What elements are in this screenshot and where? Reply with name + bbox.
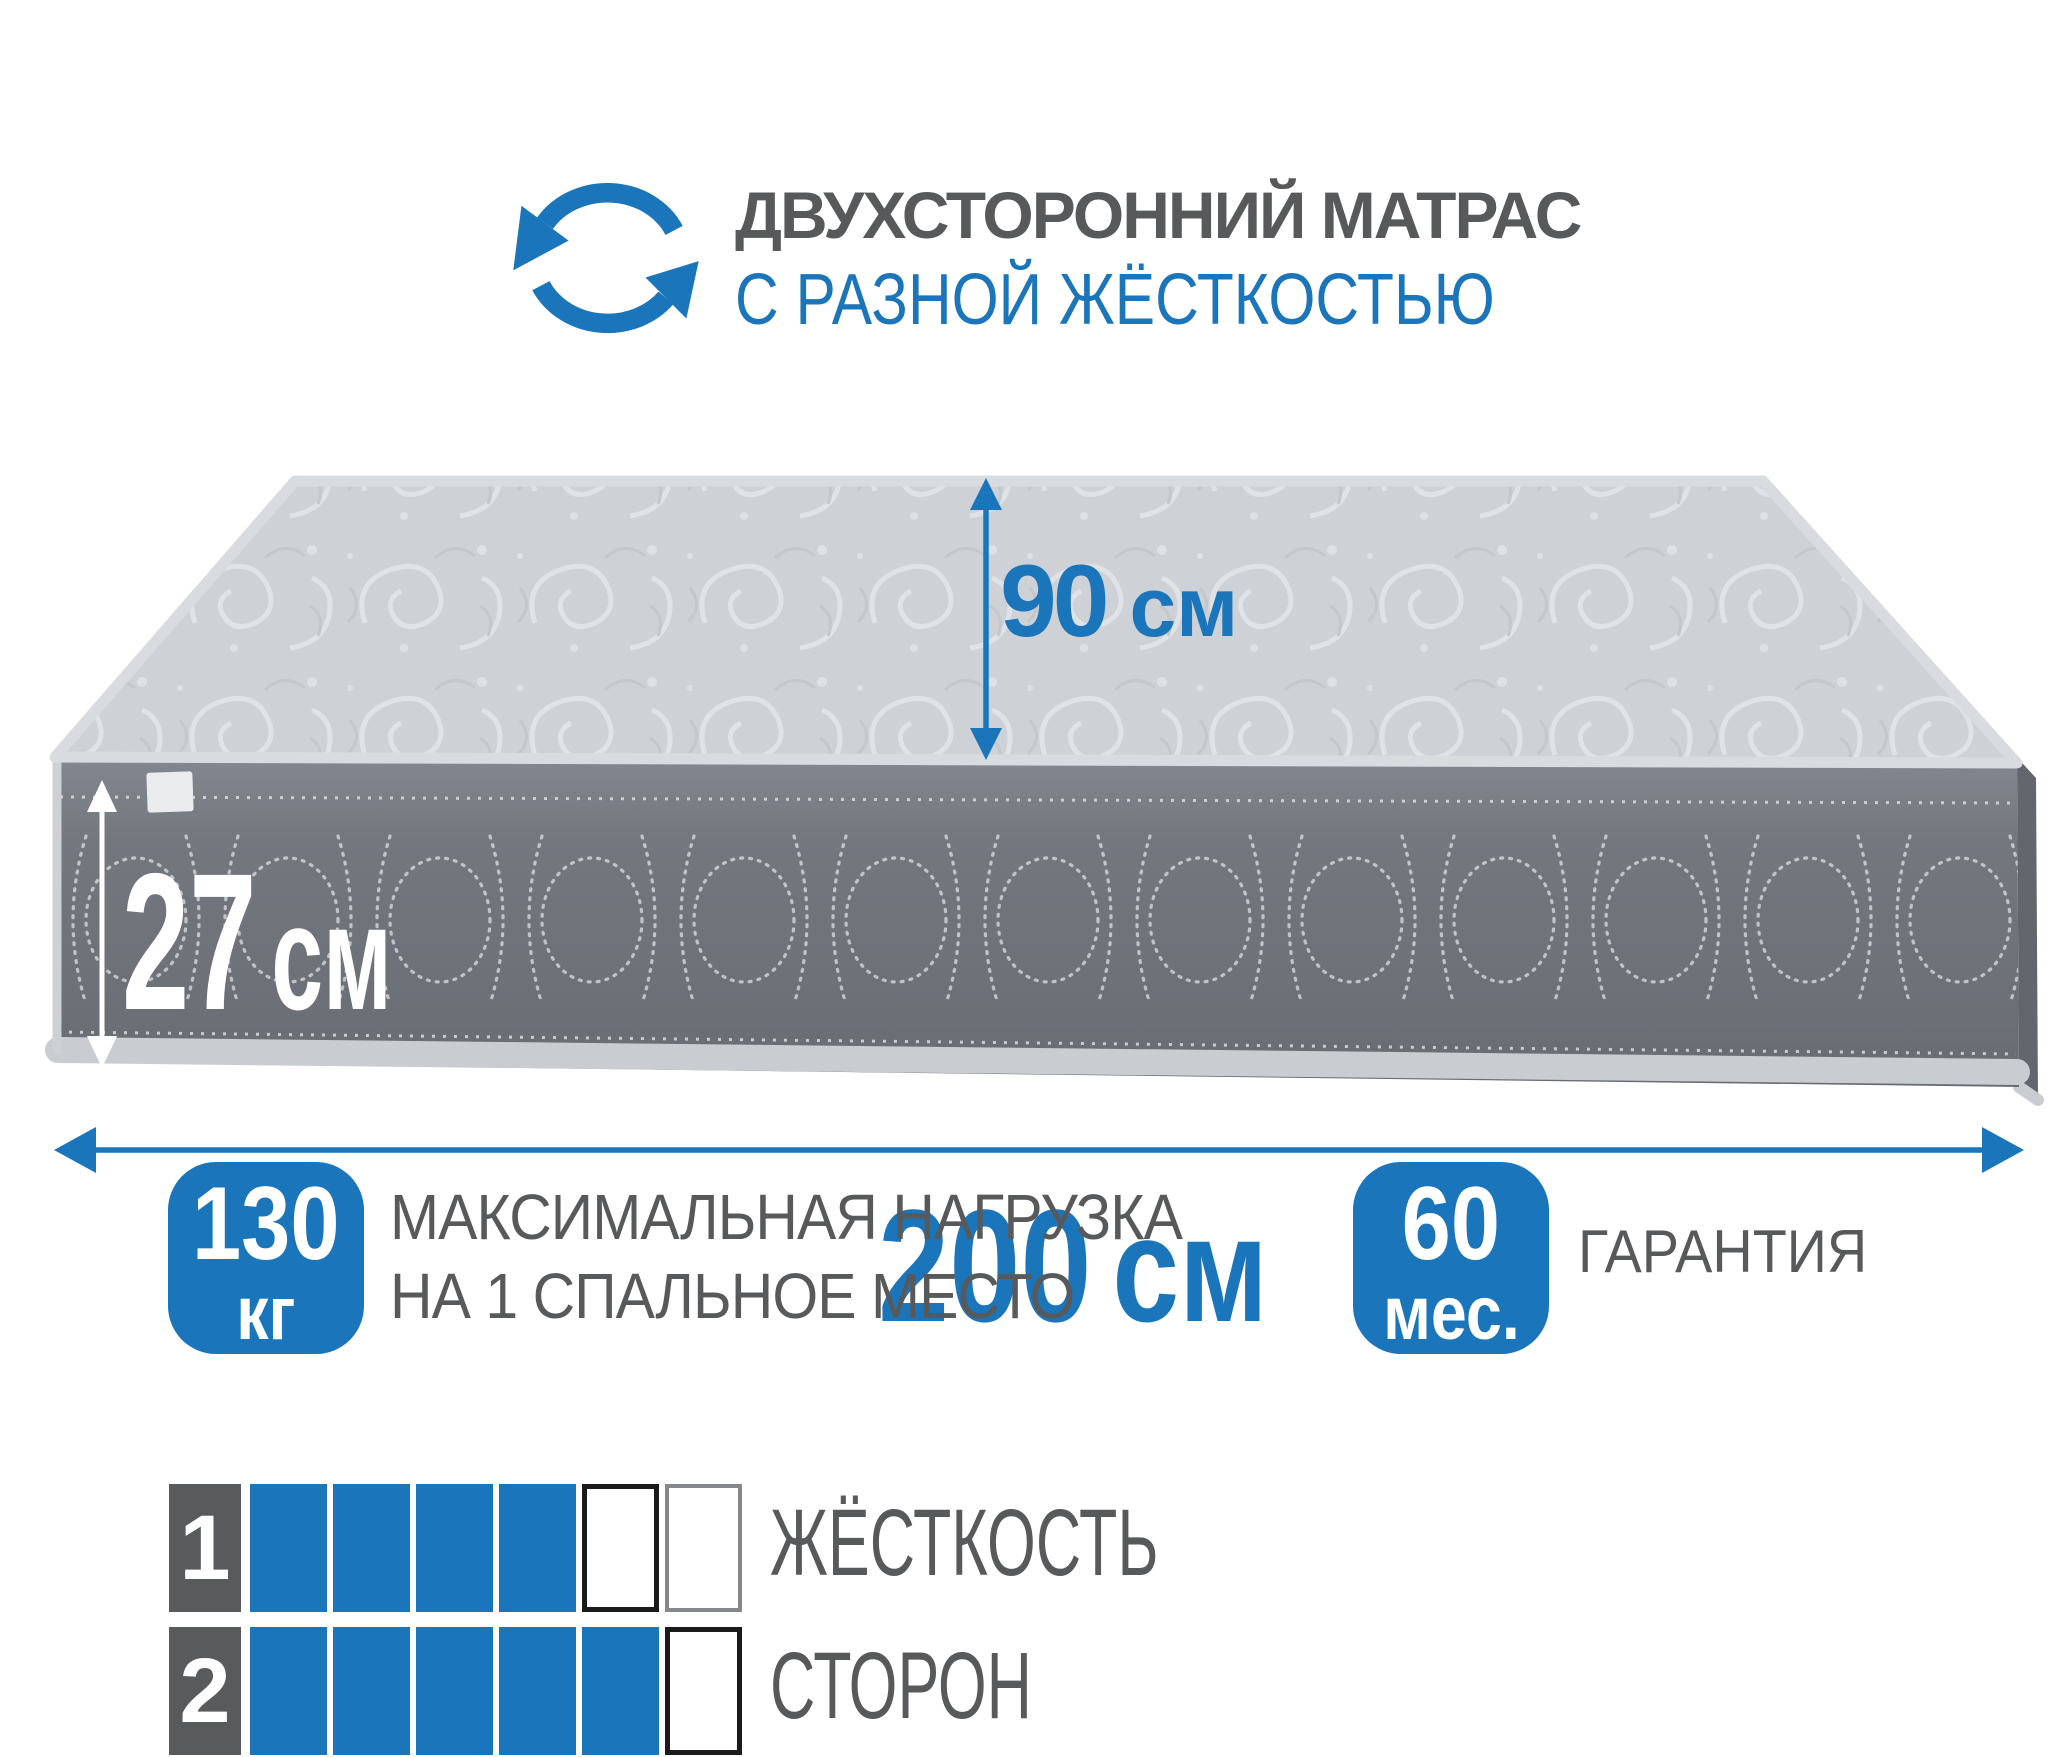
firmness-cell-empty-light bbox=[665, 1484, 742, 1612]
firmness-title-line2: СТОРОН bbox=[770, 1639, 1032, 1734]
firmness-row: 2 bbox=[169, 1627, 742, 1755]
firmness-cell-empty-strong bbox=[665, 1627, 742, 1755]
firmness-cells bbox=[250, 1627, 742, 1755]
thickness-unit: см bbox=[271, 882, 392, 1032]
mattress-tag bbox=[146, 771, 193, 813]
row-number-square: 1 bbox=[169, 1484, 241, 1612]
firmness-cell-filled bbox=[416, 1484, 493, 1612]
firmness-cell-empty-strong bbox=[582, 1484, 659, 1612]
warranty-label: ГАРАНТИЯ bbox=[1578, 1222, 1867, 1282]
page-title: ДВУХСТОРОННИЙ МАТРАС bbox=[735, 182, 1580, 248]
firmness-cell-filled bbox=[333, 1627, 410, 1755]
firmness-cell-filled bbox=[582, 1627, 659, 1755]
rotate-arrows-icon bbox=[505, 172, 710, 340]
page-subtitle: С РАЗНОЙ ЖЁСТКОСТЬЮ bbox=[735, 264, 1495, 336]
max-load-description-line2: НА 1 СПАЛЬНОЕ МЕСТО bbox=[390, 1257, 1182, 1336]
height-value: 90 bbox=[1000, 550, 1105, 652]
firmness-row: 1 bbox=[169, 1484, 742, 1612]
firmness-cell-filled bbox=[333, 1484, 410, 1612]
warranty-badge: 60 мес. bbox=[1353, 1162, 1549, 1354]
row-number-square: 2 bbox=[169, 1627, 241, 1755]
thickness-value: 27 bbox=[122, 845, 256, 1040]
thickness-dimension-label: 27 см bbox=[122, 845, 392, 1040]
firmness-cell-filled bbox=[250, 1484, 327, 1612]
max-load-description-line1: МАКСИМАЛЬНАЯ НАГРУЗКА bbox=[390, 1178, 1182, 1257]
height-dimension-label: 90 см bbox=[1000, 550, 1238, 652]
max-load-value: 130 bbox=[192, 1172, 340, 1276]
firmness-cell-filled bbox=[499, 1484, 576, 1612]
max-load-badge: 130 кг bbox=[168, 1162, 364, 1354]
firmness-cell-filled bbox=[416, 1627, 493, 1755]
height-unit: см bbox=[1129, 565, 1238, 649]
firmness-title-line1: ЖЁСТКОСТЬ bbox=[770, 1496, 1158, 1591]
firmness-cells bbox=[250, 1484, 742, 1612]
max-load-description: МАКСИМАЛЬНАЯ НАГРУЗКА НА 1 СПАЛЬНОЕ МЕСТ… bbox=[390, 1178, 1182, 1336]
warranty-value: 60 bbox=[1402, 1172, 1500, 1276]
mattress-infographic: ДВУХСТОРОННИЙ МАТРАС С РАЗНОЙ ЖЁСТКОСТЬЮ… bbox=[0, 0, 2048, 1757]
firmness-cell-filled bbox=[250, 1627, 327, 1755]
length-arrow bbox=[54, 1127, 2024, 1173]
warranty-unit: мес. bbox=[1383, 1276, 1520, 1352]
max-load-unit: кг bbox=[236, 1276, 295, 1352]
firmness-cell-filled bbox=[499, 1627, 576, 1755]
